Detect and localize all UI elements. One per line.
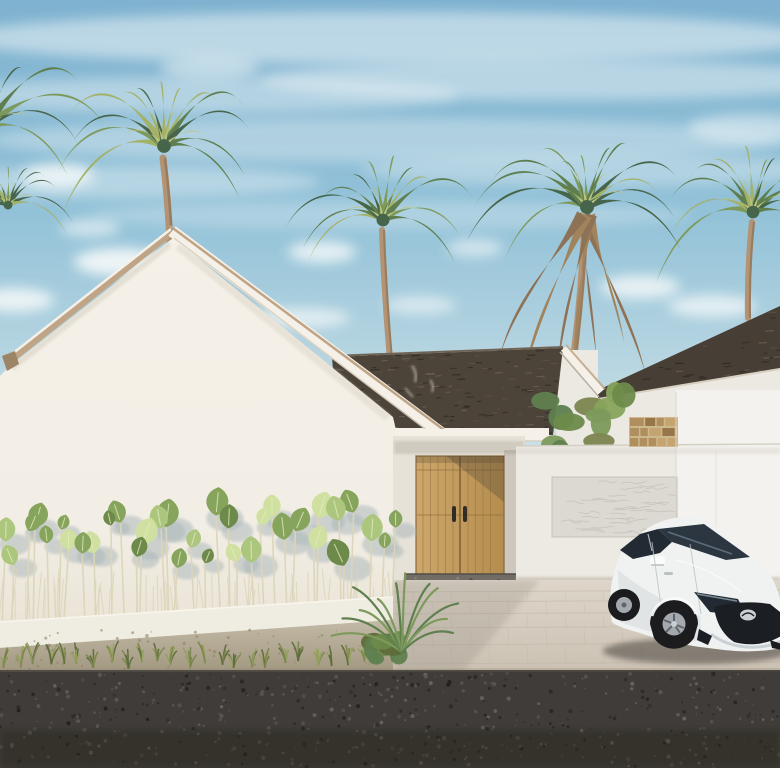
door-handle-right [463,506,467,522]
rear-wheel [608,589,640,621]
entry-door [416,456,504,582]
gravel-road [0,669,780,768]
exterior-render-image [0,0,780,768]
door-handle-chrome [664,572,673,575]
side-mirror [650,556,665,565]
stone-accent-block [629,417,678,447]
fence-top-shadow [516,448,780,454]
villa-render-scene [0,0,780,768]
door-handle-left [452,506,456,522]
